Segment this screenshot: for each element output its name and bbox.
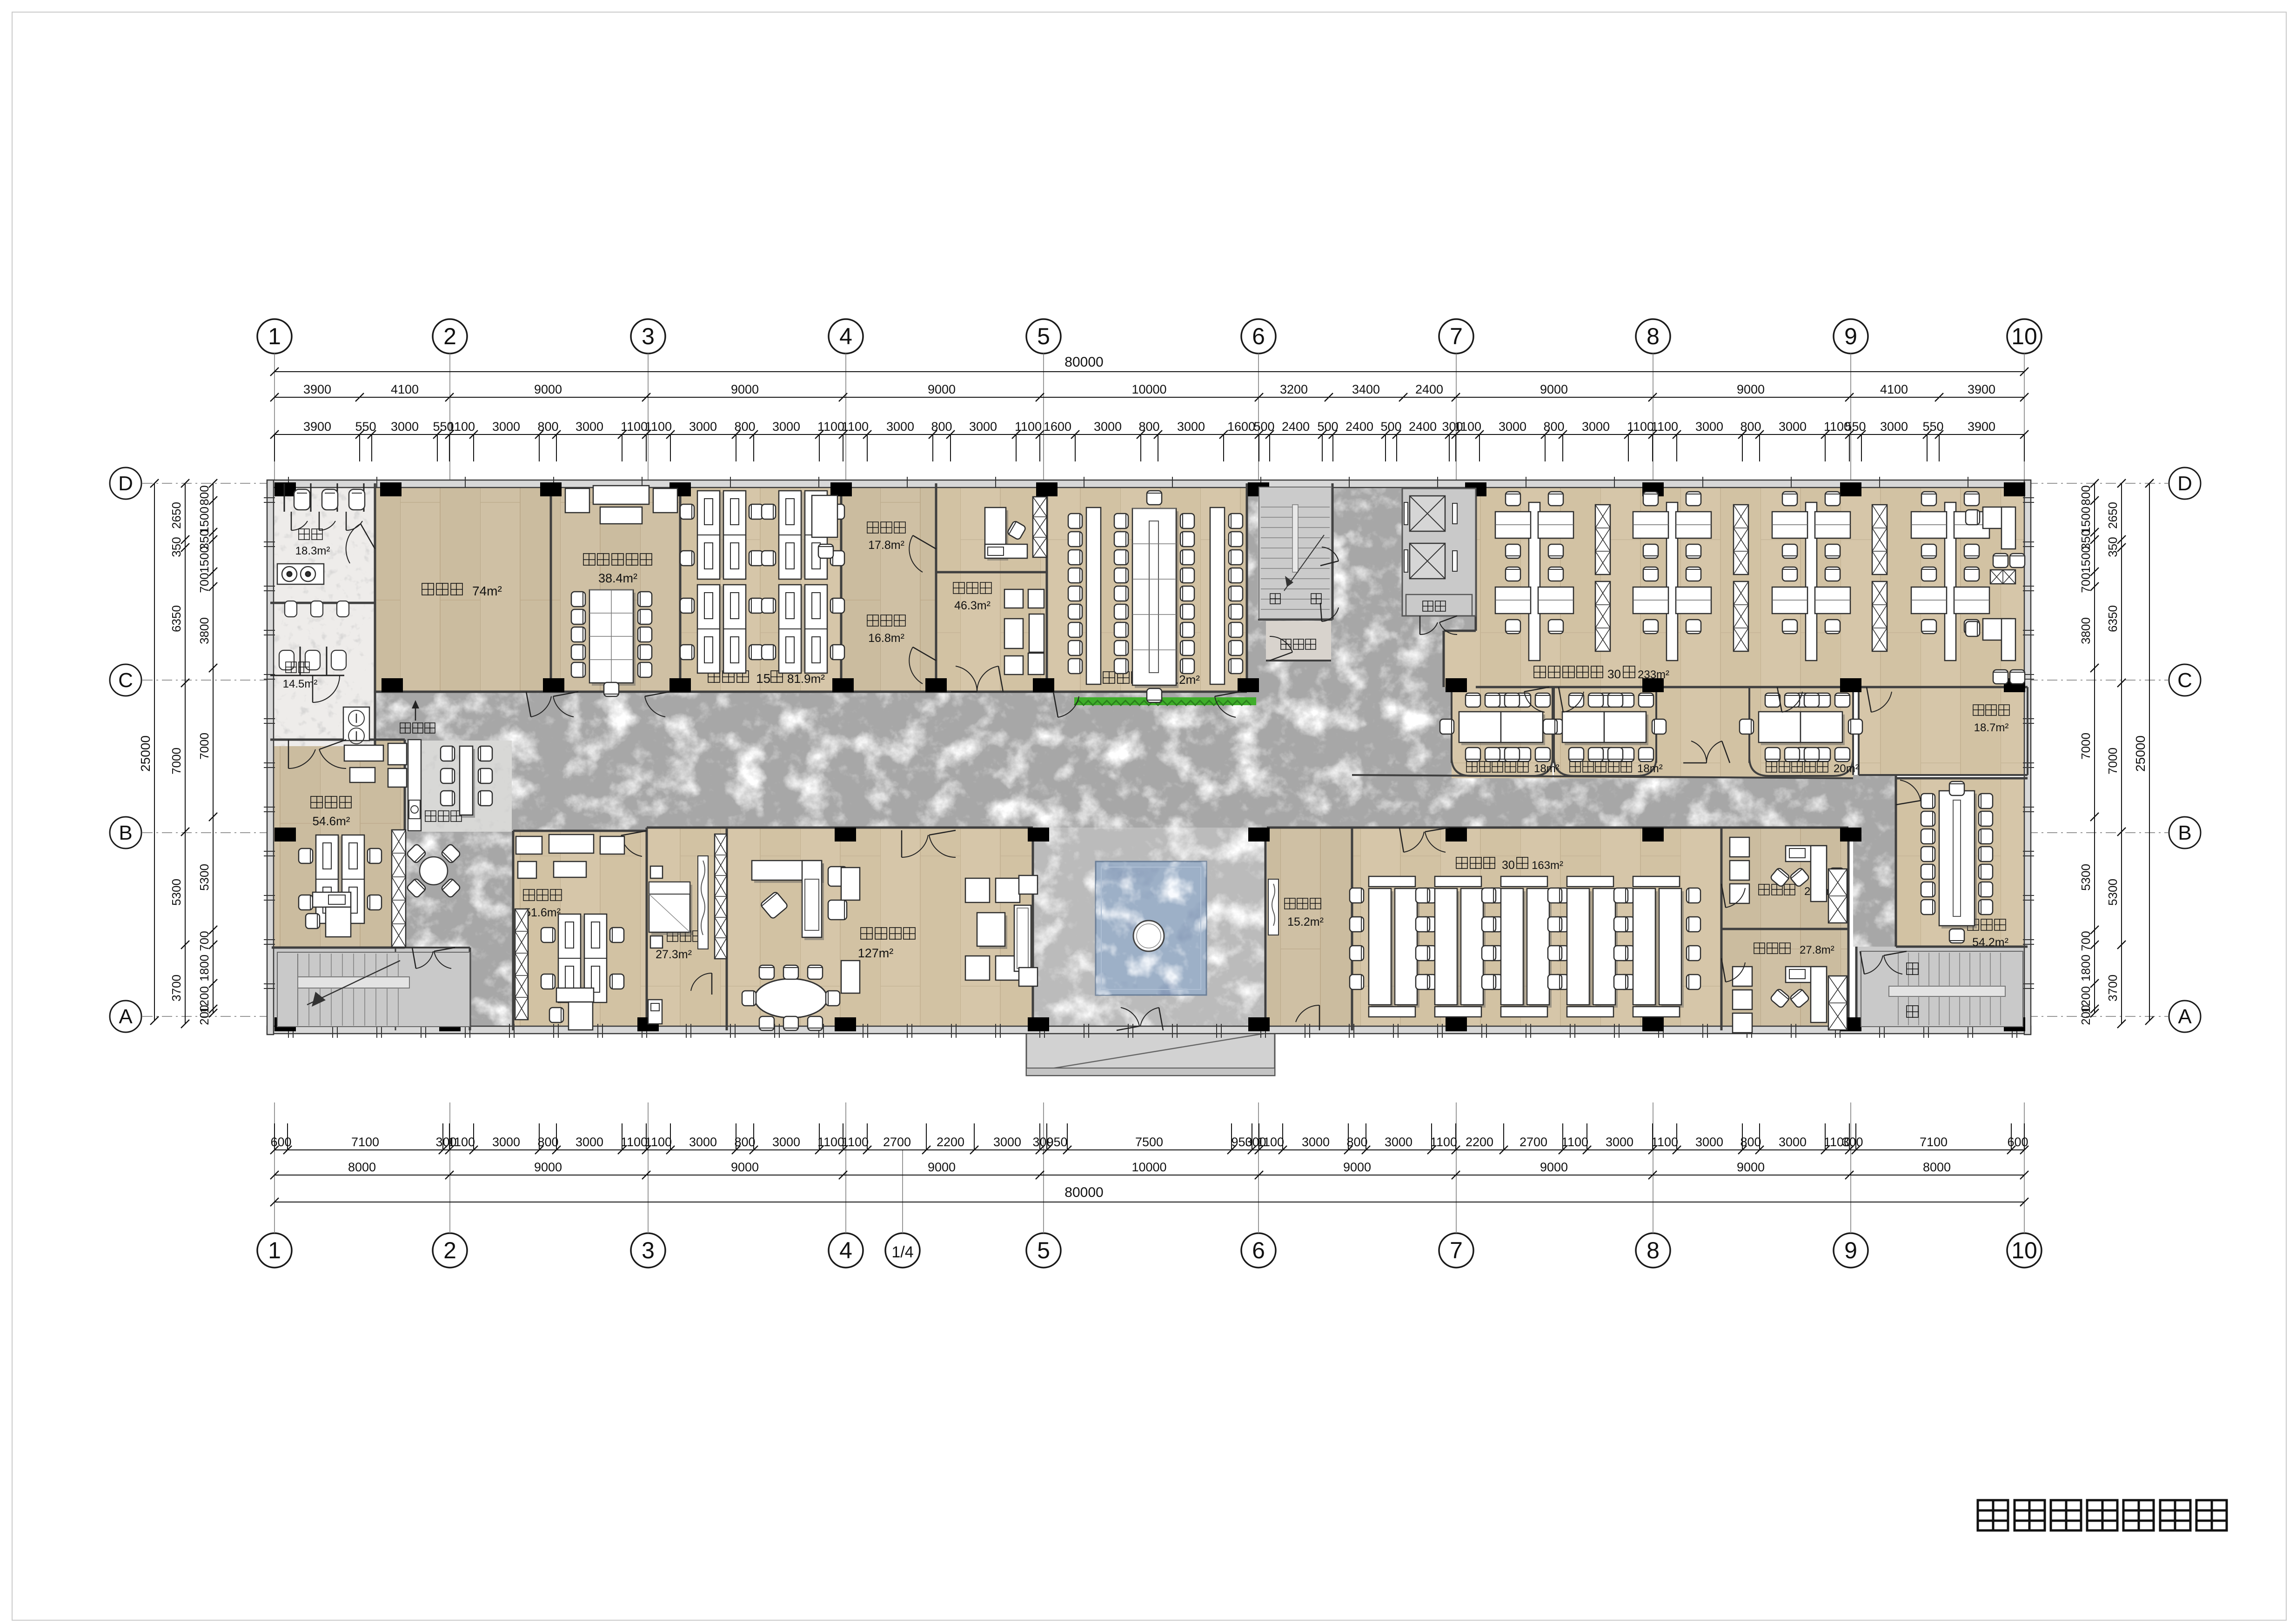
svg-text:200: 200 — [197, 1005, 211, 1025]
svg-text:3000: 3000 — [1177, 420, 1205, 434]
svg-text:550: 550 — [1845, 420, 1866, 434]
svg-text:3000: 3000 — [969, 420, 997, 434]
svg-text:6: 6 — [1252, 323, 1265, 349]
svg-text:2650: 2650 — [169, 502, 183, 529]
svg-text:15.2m²: 15.2m² — [1287, 915, 1324, 928]
svg-text:800: 800 — [1346, 1135, 1367, 1149]
svg-text:8000: 8000 — [1923, 1160, 1951, 1174]
svg-text:1100: 1100 — [1257, 1135, 1284, 1149]
svg-text:30: 30 — [1607, 667, 1621, 681]
svg-text:3000: 3000 — [993, 1135, 1021, 1149]
svg-text:27.8m²: 27.8m² — [1800, 944, 1834, 956]
svg-text:5: 5 — [1037, 1237, 1050, 1263]
svg-text:600: 600 — [270, 1135, 291, 1149]
svg-text:3000: 3000 — [391, 420, 419, 434]
svg-text:1100: 1100 — [1015, 420, 1042, 434]
svg-text:3000: 3000 — [1779, 420, 1807, 434]
svg-text:500: 500 — [1317, 420, 1338, 434]
svg-text:600: 600 — [2007, 1135, 2028, 1149]
svg-text:7500: 7500 — [1135, 1135, 1163, 1149]
svg-text:9: 9 — [1844, 1237, 1857, 1263]
svg-text:9000: 9000 — [731, 382, 759, 396]
svg-text:A: A — [2178, 1005, 2192, 1028]
svg-text:1100: 1100 — [621, 420, 648, 434]
svg-text:5300: 5300 — [197, 864, 211, 891]
svg-text:1100: 1100 — [645, 420, 672, 434]
svg-text:3: 3 — [642, 323, 655, 349]
svg-text:1100: 1100 — [621, 1135, 648, 1149]
svg-text:800: 800 — [931, 420, 952, 434]
svg-text:3000: 3000 — [689, 1135, 717, 1149]
svg-text:3000: 3000 — [1385, 1135, 1412, 1149]
svg-text:2400: 2400 — [1415, 382, 1443, 396]
svg-text:3000: 3000 — [1779, 1135, 1807, 1149]
svg-text:300: 300 — [1842, 1135, 1863, 1149]
svg-text:3800: 3800 — [197, 617, 211, 644]
svg-text:1500: 1500 — [197, 546, 211, 573]
svg-text:3000: 3000 — [689, 420, 717, 434]
svg-text:16.8m²: 16.8m² — [868, 632, 904, 645]
svg-text:1100: 1100 — [448, 420, 475, 434]
svg-text:1100: 1100 — [842, 420, 869, 434]
svg-text:B: B — [2178, 822, 2191, 844]
svg-text:9000: 9000 — [534, 382, 562, 396]
svg-text:3000: 3000 — [772, 420, 800, 434]
svg-text:4: 4 — [839, 1237, 852, 1263]
svg-text:1800: 1800 — [2079, 955, 2093, 982]
svg-text:3: 3 — [642, 1237, 655, 1263]
svg-text:2: 2 — [443, 1237, 456, 1263]
svg-text:10000: 10000 — [1131, 1160, 1166, 1174]
svg-text:51.6m²: 51.6m² — [524, 906, 561, 919]
svg-text:5300: 5300 — [2106, 879, 2120, 906]
svg-text:950: 950 — [1046, 1135, 1067, 1149]
svg-text:3000: 3000 — [492, 420, 520, 434]
svg-text:54.2m²: 54.2m² — [1972, 936, 2008, 949]
svg-text:3400: 3400 — [1352, 382, 1380, 396]
svg-text:800: 800 — [1740, 420, 1761, 434]
svg-text:800: 800 — [537, 420, 558, 434]
svg-text:800: 800 — [1543, 420, 1564, 434]
svg-text:6350: 6350 — [2106, 605, 2120, 632]
svg-text:700: 700 — [197, 573, 211, 593]
svg-text:1/4: 1/4 — [891, 1243, 913, 1261]
svg-text:3700: 3700 — [2106, 975, 2120, 1002]
svg-text:1500: 1500 — [197, 507, 211, 534]
svg-text:9000: 9000 — [731, 1160, 759, 1174]
svg-text:30: 30 — [1502, 859, 1515, 872]
svg-text:74m²: 74m² — [472, 584, 502, 598]
svg-text:4100: 4100 — [1880, 382, 1908, 396]
svg-text:6350: 6350 — [169, 605, 183, 632]
svg-text:B: B — [119, 822, 132, 844]
svg-text:1100: 1100 — [448, 1135, 475, 1149]
svg-text:2200: 2200 — [1466, 1135, 1493, 1149]
svg-text:3000: 3000 — [1695, 420, 1723, 434]
svg-text:700: 700 — [197, 931, 211, 951]
svg-text:9000: 9000 — [1540, 382, 1568, 396]
svg-text:18m²: 18m² — [1637, 762, 1663, 775]
svg-text:81.9m²: 81.9m² — [787, 672, 825, 686]
svg-text:800: 800 — [197, 485, 211, 505]
svg-text:1600: 1600 — [1227, 420, 1255, 434]
svg-text:800: 800 — [537, 1135, 558, 1149]
svg-text:1100: 1100 — [817, 420, 844, 434]
svg-text:25000: 25000 — [138, 735, 153, 772]
svg-text:15: 15 — [756, 671, 770, 686]
svg-text:1100: 1100 — [1651, 1135, 1678, 1149]
svg-text:800: 800 — [2079, 485, 2093, 505]
svg-text:9000: 9000 — [534, 1160, 562, 1174]
svg-text:8: 8 — [1647, 1237, 1660, 1263]
svg-text:38.4m²: 38.4m² — [598, 571, 637, 585]
svg-text:3000: 3000 — [1582, 420, 1610, 434]
svg-text:10000: 10000 — [1131, 382, 1166, 396]
svg-text:800: 800 — [734, 420, 755, 434]
svg-text:8: 8 — [1647, 323, 1660, 349]
svg-text:18.7m²: 18.7m² — [1974, 721, 2009, 734]
svg-text:3000: 3000 — [1695, 1135, 1723, 1149]
svg-text:18m²: 18m² — [1534, 762, 1560, 775]
svg-text:5300: 5300 — [2079, 864, 2093, 891]
svg-text:1100: 1100 — [1561, 1135, 1588, 1149]
svg-text:700: 700 — [2079, 573, 2093, 593]
svg-text:1800: 1800 — [197, 955, 211, 982]
svg-text:800: 800 — [1138, 420, 1159, 434]
svg-text:46.3m²: 46.3m² — [954, 599, 991, 612]
svg-text:80000: 80000 — [1064, 1185, 1103, 1200]
svg-text:550: 550 — [1922, 420, 1943, 434]
svg-text:1: 1 — [268, 323, 281, 349]
svg-text:3000: 3000 — [1606, 1135, 1633, 1149]
svg-text:9: 9 — [1844, 323, 1857, 349]
svg-text:2400: 2400 — [1282, 420, 1310, 434]
svg-text:3900: 3900 — [303, 420, 331, 434]
svg-text:3000: 3000 — [1880, 420, 1908, 434]
svg-text:18.3m²: 18.3m² — [295, 545, 330, 557]
svg-text:5300: 5300 — [169, 879, 183, 906]
svg-text:500: 500 — [1380, 420, 1401, 434]
svg-text:1500: 1500 — [2079, 546, 2093, 573]
svg-text:350: 350 — [169, 537, 183, 557]
svg-text:54.6m²: 54.6m² — [313, 814, 350, 828]
svg-text:2700: 2700 — [1520, 1135, 1547, 1149]
svg-text:3000: 3000 — [576, 420, 603, 434]
svg-text:1100: 1100 — [1627, 420, 1654, 434]
svg-text:700: 700 — [2079, 931, 2093, 951]
svg-text:9000: 9000 — [1343, 1160, 1371, 1174]
svg-text:9000: 9000 — [928, 382, 956, 396]
svg-text:9000: 9000 — [928, 1160, 956, 1174]
svg-text:10: 10 — [2011, 323, 2037, 349]
svg-text:D: D — [2177, 472, 2192, 495]
svg-text:200: 200 — [2079, 1005, 2093, 1025]
svg-text:9000: 9000 — [1737, 1160, 1765, 1174]
svg-text:3000: 3000 — [1302, 1135, 1330, 1149]
svg-text:7000: 7000 — [2106, 748, 2120, 775]
svg-text:17.8m²: 17.8m² — [868, 539, 904, 552]
svg-text:8000: 8000 — [348, 1160, 376, 1174]
svg-text:2650: 2650 — [2106, 502, 2120, 529]
svg-text:163m²: 163m² — [1532, 859, 1563, 872]
svg-text:7: 7 — [1450, 1237, 1463, 1263]
svg-text:20m²: 20m² — [1834, 762, 1859, 775]
svg-text:10: 10 — [2011, 1237, 2037, 1263]
svg-text:3000: 3000 — [1499, 420, 1526, 434]
svg-text:1100: 1100 — [817, 1135, 844, 1149]
svg-text:800: 800 — [734, 1135, 755, 1149]
svg-text:1100: 1100 — [1454, 420, 1481, 434]
svg-text:7100: 7100 — [1920, 1135, 1948, 1149]
svg-text:27.3m²: 27.3m² — [656, 948, 692, 961]
svg-text:4100: 4100 — [391, 382, 419, 396]
svg-text:6: 6 — [1252, 1237, 1265, 1263]
svg-text:350: 350 — [2106, 537, 2120, 557]
svg-text:7100: 7100 — [351, 1135, 379, 1149]
svg-text:3700: 3700 — [169, 975, 183, 1002]
svg-text:5: 5 — [1037, 323, 1050, 349]
svg-text:1: 1 — [268, 1237, 281, 1263]
svg-text:3000: 3000 — [886, 420, 914, 434]
svg-text:C: C — [118, 669, 133, 692]
svg-text:1100: 1100 — [842, 1135, 869, 1149]
svg-text:9000: 9000 — [1737, 382, 1765, 396]
svg-text:3900: 3900 — [1968, 382, 1995, 396]
svg-text:3000: 3000 — [576, 1135, 603, 1149]
svg-text:7000: 7000 — [197, 733, 211, 760]
svg-text:1500: 1500 — [2079, 507, 2093, 534]
svg-text:3800: 3800 — [2079, 617, 2093, 644]
svg-text:80000: 80000 — [1064, 354, 1103, 370]
svg-text:800: 800 — [1740, 1135, 1761, 1149]
svg-text:7000: 7000 — [2079, 733, 2093, 760]
svg-text:500: 500 — [1253, 420, 1274, 434]
svg-text:7: 7 — [1450, 323, 1463, 349]
svg-text:3000: 3000 — [492, 1135, 520, 1149]
svg-text:4: 4 — [839, 323, 852, 349]
svg-text:7000: 7000 — [169, 748, 183, 775]
svg-text:2200: 2200 — [937, 1135, 964, 1149]
svg-text:3900: 3900 — [303, 382, 331, 396]
svg-text:2400: 2400 — [1409, 420, 1437, 434]
svg-text:1100: 1100 — [645, 1135, 672, 1149]
svg-text:1100: 1100 — [1430, 1135, 1457, 1149]
svg-text:3000: 3000 — [1094, 420, 1122, 434]
svg-text:1100: 1100 — [1651, 420, 1678, 434]
svg-text:A: A — [119, 1005, 133, 1028]
svg-text:2: 2 — [443, 323, 456, 349]
svg-text:25000: 25000 — [2133, 735, 2148, 772]
svg-text:2400: 2400 — [1345, 420, 1373, 434]
svg-text:9000: 9000 — [1540, 1160, 1568, 1174]
svg-text:127m²: 127m² — [858, 946, 894, 960]
svg-text:2700: 2700 — [883, 1135, 911, 1149]
svg-text:D: D — [118, 472, 133, 495]
svg-text:550: 550 — [355, 420, 376, 434]
svg-text:3900: 3900 — [1968, 420, 1995, 434]
svg-text:3000: 3000 — [772, 1135, 800, 1149]
svg-text:C: C — [2177, 669, 2192, 692]
svg-text:233m²: 233m² — [1638, 668, 1669, 681]
svg-text:1600: 1600 — [1044, 420, 1071, 434]
svg-text:3200: 3200 — [1280, 382, 1308, 396]
